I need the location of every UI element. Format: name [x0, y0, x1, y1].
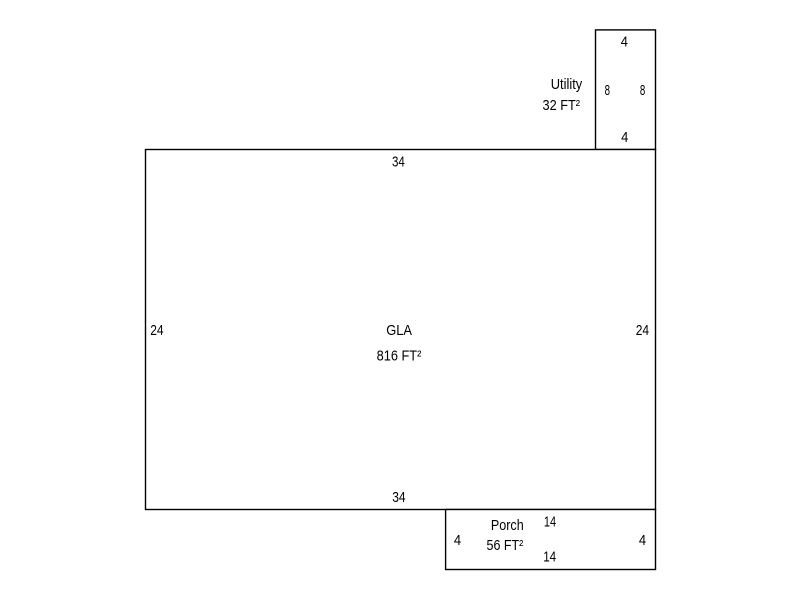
- svg-text:GLA: GLA: [386, 323, 412, 339]
- svg-text:24: 24: [150, 323, 163, 339]
- svg-text:Porch: Porch: [491, 518, 524, 534]
- svg-text:4: 4: [621, 130, 628, 146]
- svg-text:4: 4: [639, 533, 646, 549]
- svg-text:32 FT²: 32 FT²: [543, 98, 581, 114]
- svg-text:34: 34: [392, 490, 405, 506]
- svg-text:4: 4: [621, 35, 628, 51]
- svg-text:56 FT²: 56 FT²: [487, 538, 524, 554]
- svg-text:24: 24: [636, 323, 649, 339]
- svg-text:34: 34: [392, 155, 405, 171]
- svg-text:14: 14: [544, 515, 556, 531]
- svg-text:Utility: Utility: [551, 77, 583, 93]
- svg-text:8: 8: [605, 83, 610, 99]
- svg-text:4: 4: [454, 533, 461, 549]
- svg-text:816 FT²: 816 FT²: [377, 348, 422, 364]
- svg-text:8: 8: [640, 83, 645, 99]
- svg-text:14: 14: [543, 549, 556, 565]
